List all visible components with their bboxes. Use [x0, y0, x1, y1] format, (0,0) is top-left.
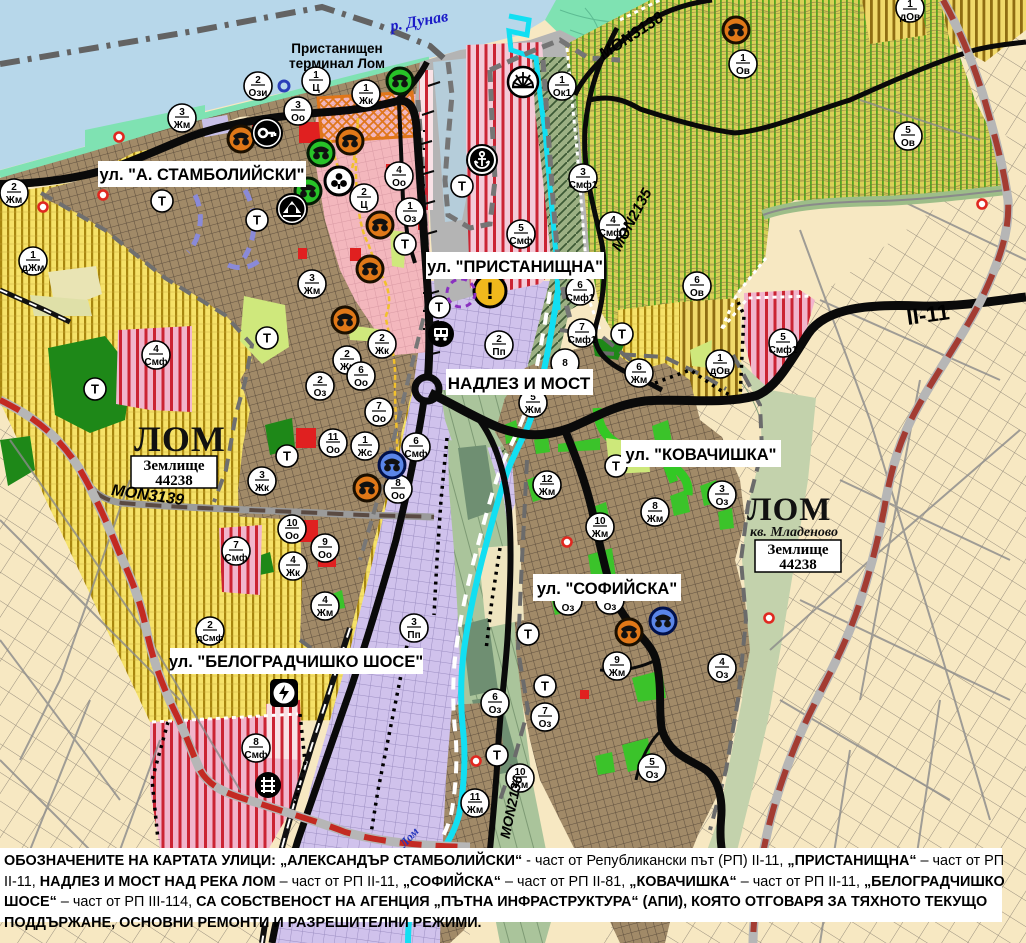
svg-text:Жм: Жм	[466, 805, 483, 816]
svg-text:дОв: дОв	[710, 366, 730, 377]
svg-text:Т: Т	[458, 179, 466, 194]
svg-text:Оо: Оо	[326, 445, 340, 456]
svg-text:1: 1	[313, 70, 319, 81]
svg-text:ул. "БЕЛОГРАДЧИШКО ШОСЕ": ул. "БЕЛОГРАДЧИШКО ШОСЕ"	[169, 653, 423, 671]
svg-text:Т: Т	[524, 627, 532, 642]
svg-text:2: 2	[11, 182, 17, 193]
svg-text:2: 2	[344, 349, 350, 360]
svg-text:1: 1	[407, 201, 413, 212]
svg-text:4: 4	[610, 215, 616, 226]
svg-text:Смф: Смф	[509, 235, 532, 247]
svg-text:6: 6	[413, 436, 419, 447]
svg-text:Землище: Землище	[143, 458, 205, 474]
svg-text:4: 4	[322, 595, 328, 606]
svg-text:10: 10	[286, 518, 298, 529]
svg-text:4: 4	[290, 555, 296, 566]
svg-text:Ов: Ов	[690, 288, 704, 299]
svg-text:кв. Младеново: кв. Младеново	[750, 525, 838, 540]
svg-text:8: 8	[395, 478, 401, 489]
svg-text:2: 2	[361, 187, 367, 198]
svg-text:44238: 44238	[779, 557, 817, 573]
svg-text:11: 11	[328, 432, 339, 443]
svg-text:1: 1	[559, 75, 565, 86]
svg-text:Смф: Смф	[244, 749, 267, 761]
svg-text:Смф1: Смф1	[769, 344, 798, 356]
svg-text:9: 9	[322, 537, 328, 548]
svg-text:Т: Т	[253, 213, 261, 228]
svg-text:ЛОМ: ЛОМ	[747, 492, 831, 528]
svg-text:дСмф: дСмф	[197, 633, 224, 643]
svg-text:Смф: Смф	[144, 356, 167, 368]
svg-text:2: 2	[207, 620, 213, 631]
svg-text:5: 5	[905, 125, 911, 136]
svg-text:3: 3	[580, 167, 586, 178]
svg-text:Оо: Оо	[318, 550, 332, 561]
svg-text:ЛОМ: ЛОМ	[134, 419, 226, 459]
svg-text:4: 4	[396, 165, 402, 176]
svg-text:Оз: Оз	[404, 214, 417, 225]
svg-text:Жк: Жк	[254, 483, 270, 494]
svg-text:Жм: Жм	[608, 668, 625, 679]
svg-text:4: 4	[153, 344, 159, 355]
svg-text:НАДЛЕЗ И МОСТ: НАДЛЕЗ И МОСТ	[448, 374, 591, 393]
svg-text:12: 12	[541, 474, 553, 485]
svg-text:Жк: Жк	[358, 96, 374, 107]
svg-text:7: 7	[376, 401, 382, 412]
svg-text:Смф: Смф	[404, 448, 427, 460]
svg-text:9: 9	[614, 655, 620, 666]
svg-text:Т: Т	[618, 327, 626, 342]
svg-text:Пп: Пп	[407, 630, 420, 641]
svg-text:ул. "КОВАЧИШКА": ул. "КОВАЧИШКА"	[626, 446, 777, 464]
svg-text:Оз: Оз	[314, 388, 327, 399]
svg-text:3: 3	[179, 107, 185, 118]
svg-text:дЖм: дЖм	[22, 263, 45, 274]
svg-text:Смф1: Смф1	[569, 179, 598, 191]
svg-text:4: 4	[719, 657, 725, 668]
svg-text:3: 3	[719, 484, 725, 495]
svg-text:ул. "А. СТАМБОЛИЙСКИ": ул. "А. СТАМБОЛИЙСКИ"	[100, 165, 305, 184]
svg-text:6: 6	[694, 275, 700, 286]
svg-text:Оз: Оз	[604, 602, 617, 613]
svg-text:Смф: Смф	[224, 552, 247, 564]
svg-text:Ов: Ов	[901, 138, 915, 149]
svg-text:Т: Т	[91, 382, 99, 397]
svg-text:Т: Т	[263, 331, 271, 346]
svg-text:3: 3	[295, 100, 301, 111]
svg-text:1: 1	[717, 353, 723, 364]
svg-text:Жм: Жм	[173, 120, 190, 131]
svg-text:Т: Т	[541, 679, 549, 694]
svg-text:10: 10	[594, 516, 606, 527]
svg-text:1: 1	[363, 83, 369, 94]
svg-text:Жм: Жм	[538, 487, 555, 498]
svg-text:Жм: Жм	[303, 286, 320, 297]
svg-text:Жм: Жм	[316, 608, 333, 619]
svg-text:Жс: Жс	[357, 448, 373, 459]
svg-text:Оз: Оз	[646, 770, 659, 781]
svg-text:1: 1	[30, 250, 36, 261]
svg-text:5: 5	[649, 757, 655, 768]
svg-text:Жк: Жк	[374, 346, 390, 357]
svg-text:Т: Т	[401, 237, 409, 252]
svg-text:Жк: Жк	[285, 568, 301, 579]
svg-text:ул. "ПРИСТАНИЩНА": ул. "ПРИСТАНИЩНА"	[427, 258, 603, 276]
svg-text:Т: Т	[283, 449, 291, 464]
svg-text:Ози: Ози	[249, 88, 268, 99]
svg-text:Смф1: Смф1	[568, 334, 597, 346]
svg-text:6: 6	[636, 362, 642, 373]
svg-text:!: !	[486, 278, 494, 305]
svg-text:44238: 44238	[155, 473, 193, 489]
svg-text:8: 8	[652, 501, 658, 512]
svg-text:Жм: Жм	[5, 195, 22, 206]
svg-text:Ок1: Ок1	[553, 88, 572, 99]
svg-text:2: 2	[317, 375, 323, 386]
svg-text:8: 8	[253, 737, 259, 748]
svg-text:ул. "СОФИЙСКА": ул. "СОФИЙСКА"	[537, 579, 677, 598]
svg-text:терминал Лом: терминал Лом	[289, 56, 385, 71]
svg-text:7: 7	[579, 322, 585, 333]
svg-text:Оз: Оз	[716, 497, 729, 508]
svg-text:Оо: Оо	[285, 531, 299, 542]
svg-text:5: 5	[518, 223, 524, 234]
svg-text:6: 6	[492, 692, 498, 703]
svg-text:Жм: Жм	[524, 405, 541, 416]
svg-text:Пристанищен: Пристанищен	[291, 41, 382, 56]
svg-text:2: 2	[379, 333, 385, 344]
svg-text:3: 3	[411, 617, 417, 628]
svg-text:2: 2	[255, 75, 261, 86]
svg-text:Жм: Жм	[591, 529, 608, 540]
svg-text:Т: Т	[158, 194, 166, 209]
svg-text:дОв: дОв	[900, 12, 920, 23]
svg-text:3: 3	[259, 470, 265, 481]
svg-text:Оз: Оз	[489, 705, 502, 716]
svg-text:Оо: Оо	[372, 414, 386, 425]
svg-text:Оо: Оо	[392, 178, 406, 189]
svg-text:Т: Т	[493, 748, 501, 763]
svg-text:Оз: Оз	[539, 719, 552, 730]
svg-text:11: 11	[470, 792, 481, 803]
svg-text:1: 1	[362, 435, 368, 446]
svg-text:Смф1: Смф1	[566, 292, 595, 304]
svg-text:7: 7	[542, 706, 548, 717]
svg-text:Жм: Жм	[646, 514, 663, 525]
svg-text:Оз: Оз	[716, 670, 729, 681]
svg-text:Ц: Ц	[312, 83, 320, 94]
svg-text:Оо: Оо	[354, 378, 368, 389]
svg-text:Пп: Пп	[492, 347, 505, 358]
svg-text:1: 1	[740, 53, 746, 64]
svg-text:Оо: Оо	[391, 491, 405, 502]
svg-text:6: 6	[358, 365, 364, 376]
svg-text:Жм: Жм	[630, 375, 647, 386]
svg-text:Ц: Ц	[360, 200, 368, 211]
svg-text:8: 8	[562, 358, 568, 369]
svg-text:7: 7	[233, 540, 239, 551]
svg-text:5: 5	[780, 332, 786, 343]
svg-text:Ов: Ов	[736, 66, 750, 77]
svg-text:Оо: Оо	[291, 113, 305, 124]
svg-text:Т: Т	[435, 300, 443, 315]
svg-text:Землище: Землище	[767, 542, 829, 558]
svg-text:6: 6	[577, 280, 583, 291]
svg-text:2: 2	[496, 334, 502, 345]
svg-text:Т: Т	[612, 459, 620, 474]
svg-text:3: 3	[309, 273, 315, 284]
svg-text:Оз: Оз	[562, 603, 575, 614]
